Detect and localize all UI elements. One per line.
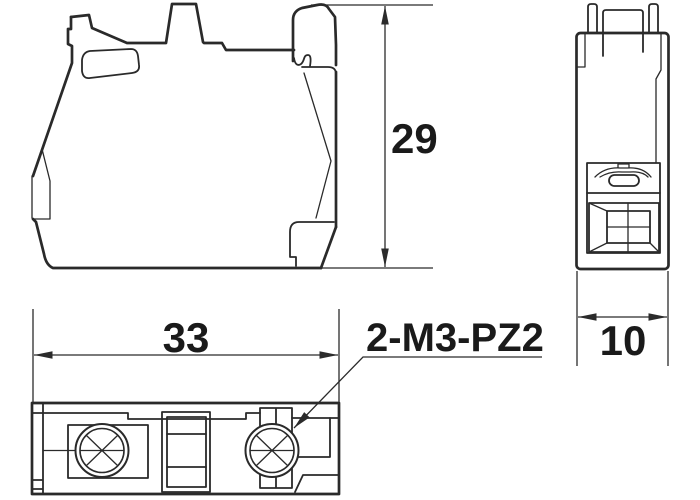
side-terminal-box	[587, 163, 660, 253]
dimension-depth: 10	[577, 271, 668, 366]
callout-label: 2-M3-PZ2	[366, 316, 544, 360]
dimension-height: 29	[311, 5, 438, 268]
front-corner-diagonal	[321, 227, 336, 268]
dim33-label: 33	[163, 314, 210, 361]
side-left-step	[577, 33, 585, 67]
front-latch	[293, 5, 336, 66]
technical-drawing: 29 33 10 2-M3-PZ2	[0, 0, 700, 500]
bottom-view-drawing	[32, 403, 339, 494]
bottom-left-strip	[32, 403, 43, 494]
front-bottom-outline	[33, 219, 321, 268]
front-view-drawing	[32, 4, 336, 268]
side-body	[577, 33, 669, 269]
side-prong-left	[588, 4, 597, 33]
dim29-label: 29	[391, 115, 438, 162]
front-left-inner-line	[33, 149, 50, 219]
dimension-width: 33	[33, 309, 339, 402]
screw-right	[246, 424, 299, 477]
bottom-right-step	[295, 475, 339, 492]
front-window	[82, 49, 139, 78]
side-right-profile	[656, 33, 661, 163]
screw-left	[76, 424, 129, 477]
bottom-slot-outer	[162, 412, 210, 492]
dim10-label: 10	[600, 317, 647, 364]
front-left-outline	[33, 17, 72, 176]
drawing-canvas: 29 33 10 2-M3-PZ2	[0, 0, 700, 500]
bottom-slot-dividers	[167, 434, 206, 467]
front-latch-wiggle	[294, 55, 311, 66]
bottom-top-band	[43, 413, 339, 419]
side-screw-slot	[609, 175, 639, 186]
front-right-inner-diagonals	[304, 73, 331, 218]
side-prong-right	[649, 4, 658, 33]
front-step-box	[290, 222, 334, 266]
front-right-box	[302, 67, 336, 74]
front-top-outline	[71, 4, 294, 50]
screw-callout: 2-M3-PZ2	[294, 316, 544, 428]
bottom-slot-inner	[167, 417, 206, 487]
side-view-drawing	[577, 4, 669, 269]
